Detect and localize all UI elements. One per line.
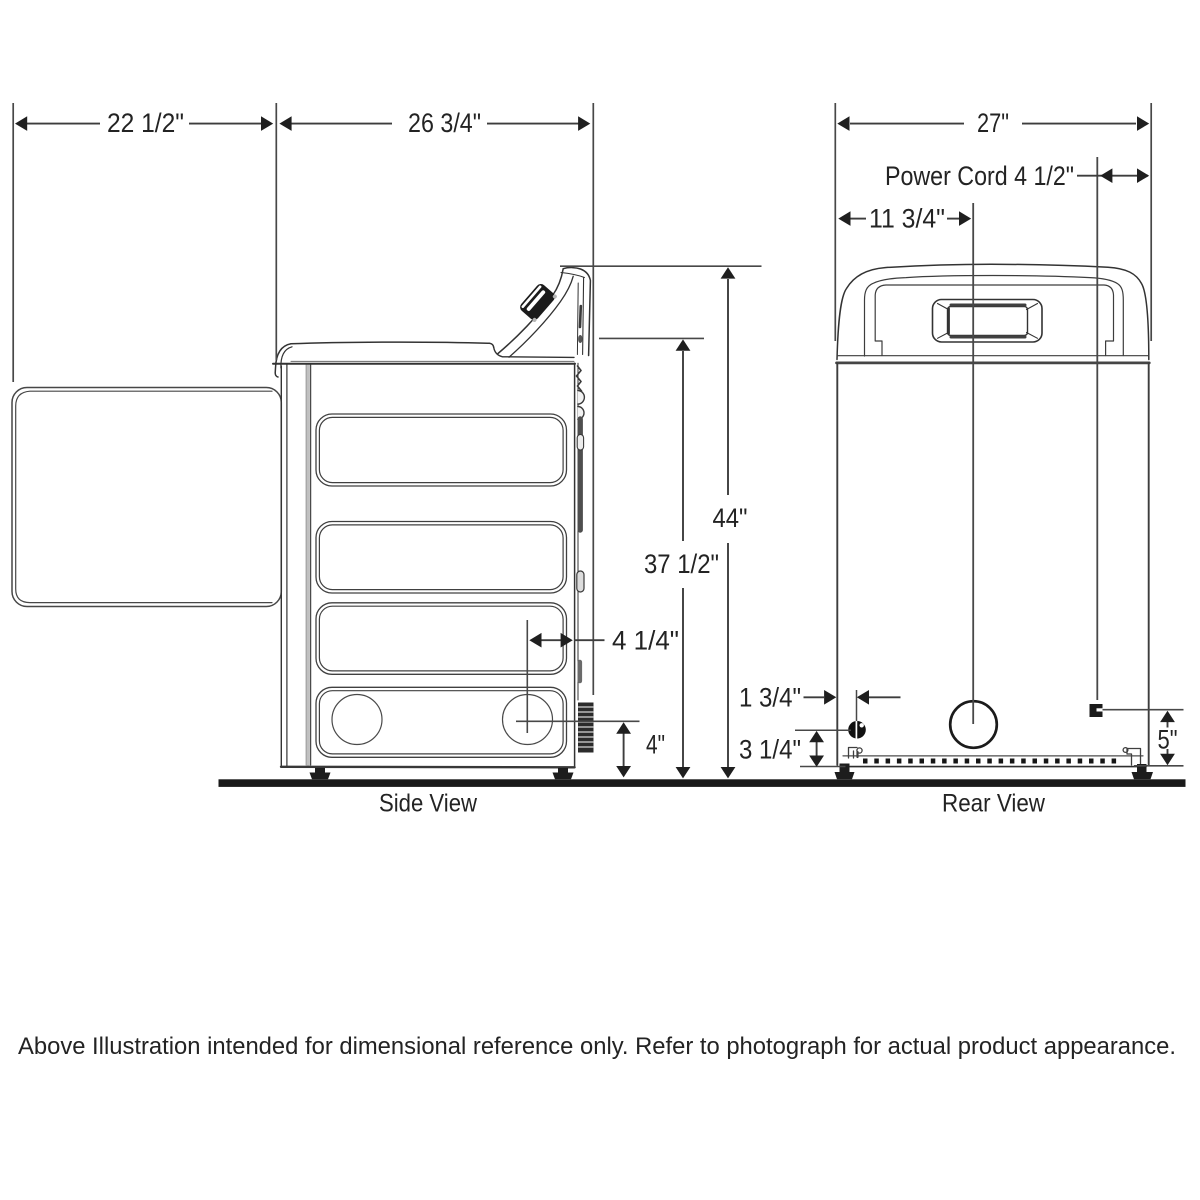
svg-text:37 1/2": 37 1/2" xyxy=(644,549,719,579)
svg-text:1 3/4": 1 3/4" xyxy=(739,683,801,713)
svg-text:Power Cord 4 1/2": Power Cord 4 1/2" xyxy=(885,161,1074,191)
svg-text:3 1/4": 3 1/4" xyxy=(739,735,801,765)
svg-text:4": 4" xyxy=(646,730,665,760)
svg-text:26 3/4": 26 3/4" xyxy=(408,108,481,138)
svg-text:Above Illustration intended fo: Above Illustration intended for dimensio… xyxy=(18,1033,1176,1060)
svg-text:27": 27" xyxy=(977,108,1009,138)
svg-text:44": 44" xyxy=(713,503,748,533)
svg-text:Rear View: Rear View xyxy=(942,790,1046,818)
svg-text:5": 5" xyxy=(1158,725,1178,755)
svg-text:22 1/2": 22 1/2" xyxy=(107,108,184,138)
svg-text:4 1/4": 4 1/4" xyxy=(612,626,679,656)
svg-text:Side View: Side View xyxy=(379,790,478,818)
svg-text:11 3/4": 11 3/4" xyxy=(869,204,945,234)
